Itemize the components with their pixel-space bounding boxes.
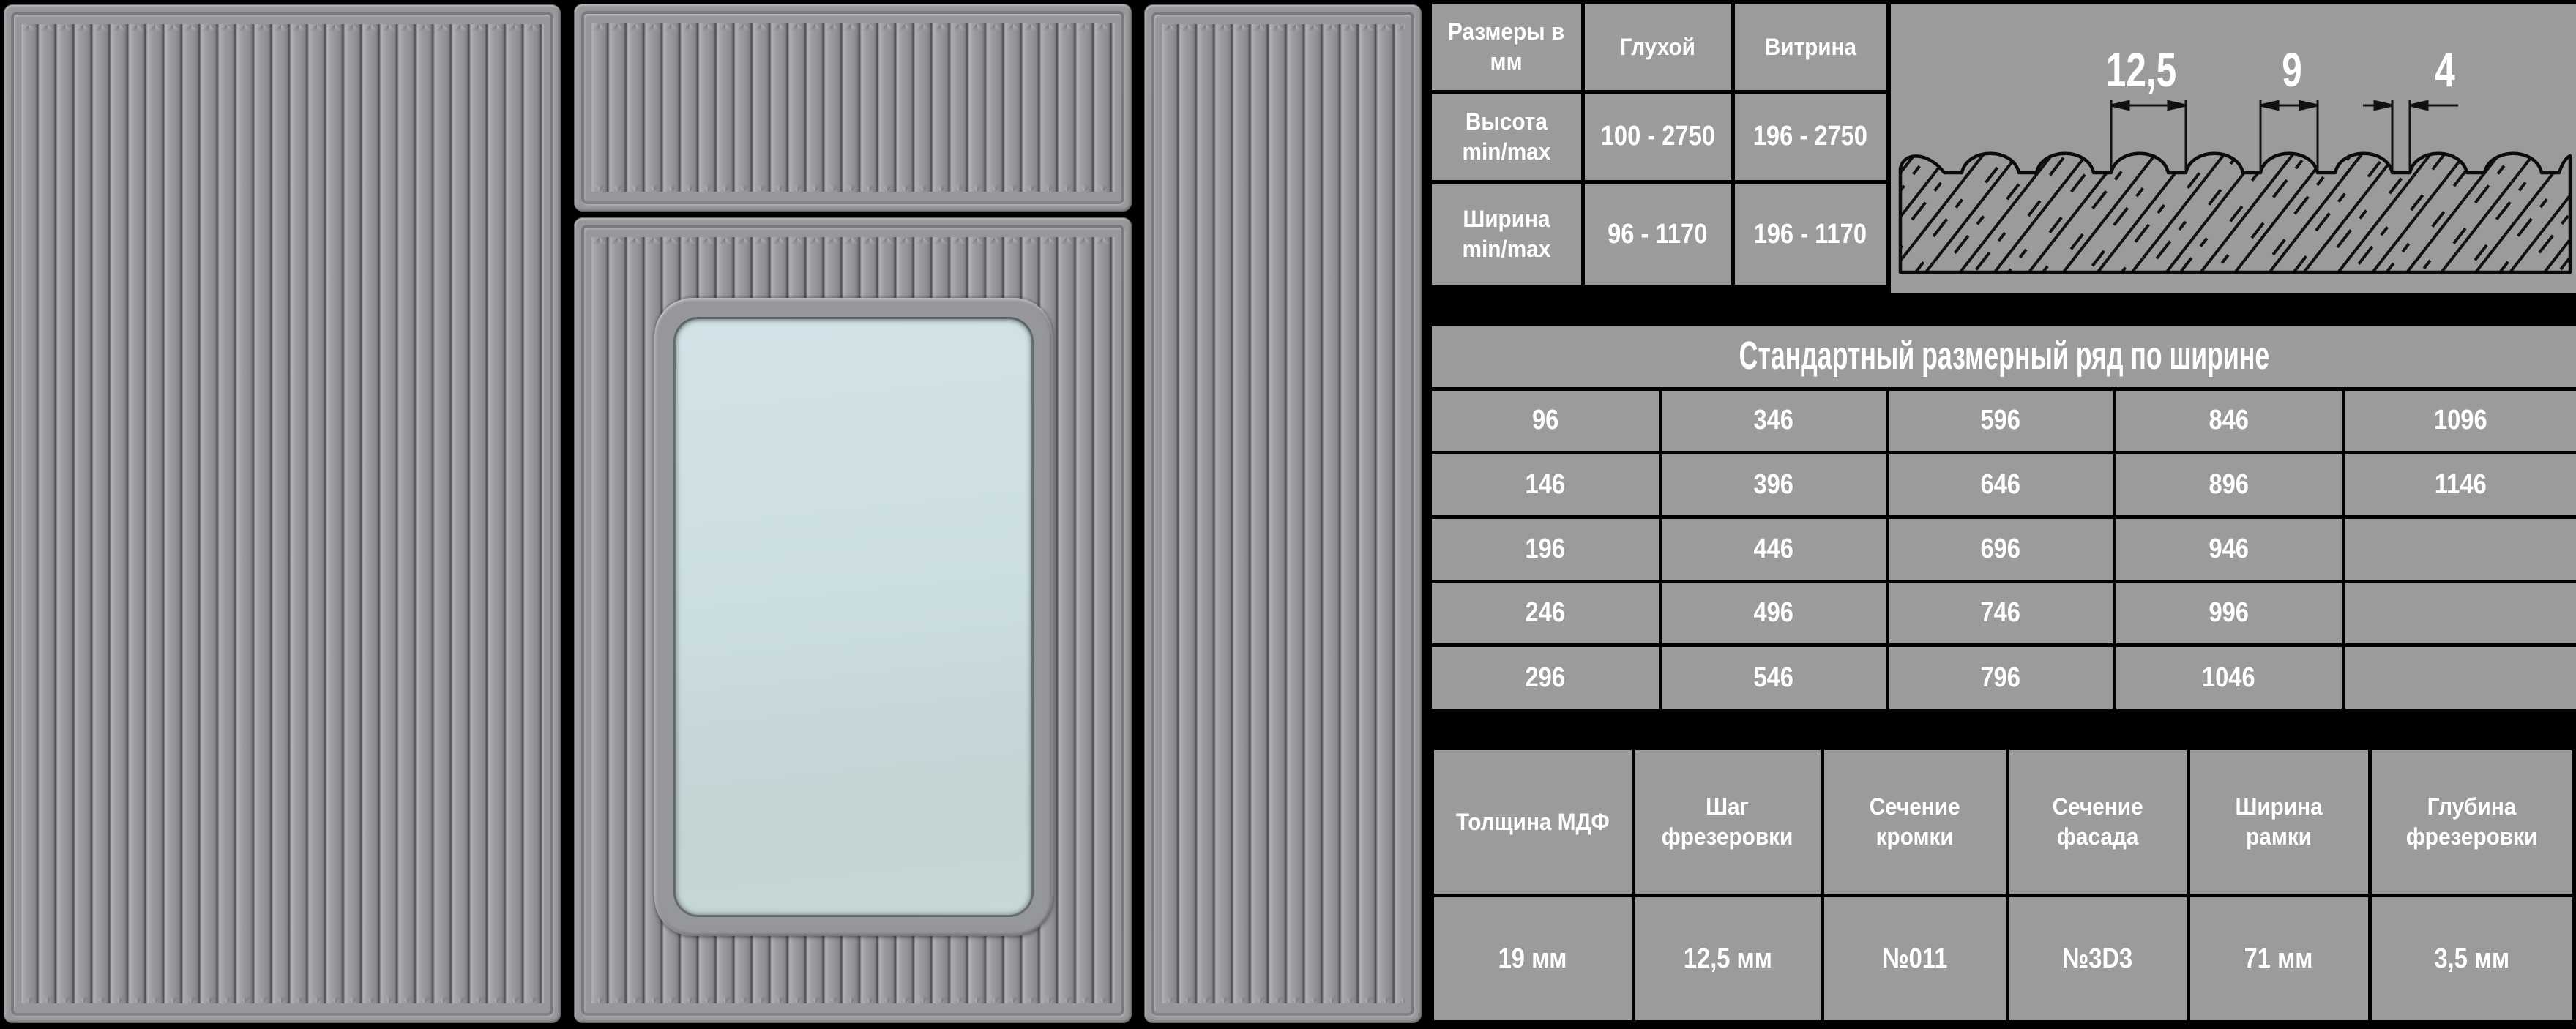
svg-text:12,5: 12,5 — [2106, 43, 2176, 97]
svg-text:4: 4 — [2435, 43, 2455, 97]
svg-text:9: 9 — [2282, 43, 2302, 97]
